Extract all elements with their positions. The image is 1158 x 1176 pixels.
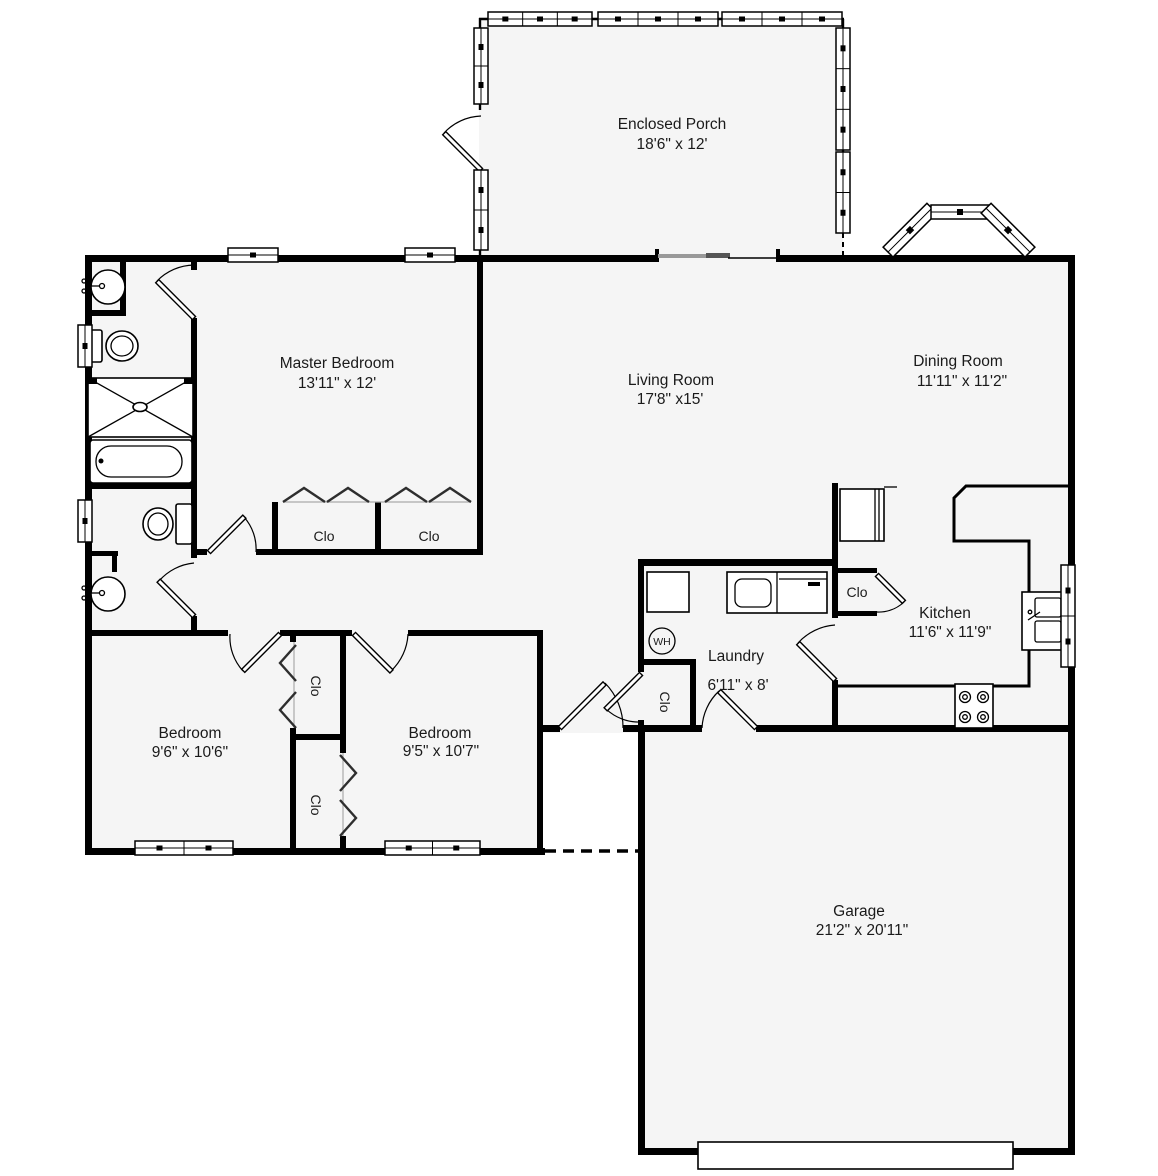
garage-name: Garage [833,903,885,920]
living-room-dims: 17'8" x15' [637,391,704,408]
garage-door [698,1142,1013,1169]
floor-plan-page: WH [0,0,1158,1176]
garage-dims: 21'2" x 20'11" [816,922,908,939]
garage-floor [640,733,1075,1153]
window [427,253,433,258]
bathtub [90,440,192,483]
porch-window [841,210,846,216]
porch-window [779,17,785,22]
master-bedroom-dims: 13'11" x 12' [298,375,376,392]
porch-window [739,17,745,22]
window [406,846,412,851]
window [83,343,88,349]
bedroom-left-dims: 9'6" x 10'6" [152,744,228,761]
window [83,518,88,524]
laundry-dims: 6'11" x 8' [707,677,768,694]
porch-window [502,17,508,22]
bedroom-left-closet-label: Clo [308,675,324,696]
porch-window [479,187,484,193]
refrigerator [840,489,884,541]
master-closet-left-label: Clo [313,528,334,544]
stove [955,684,993,728]
window [250,253,256,258]
dining-room-name: Dining Room [913,353,1003,370]
window [1066,639,1071,645]
dining-room-dims: 11'11" x 11'2" [917,373,1007,390]
porch-door [443,116,483,172]
washer-dryer [727,572,827,613]
porch-window [479,82,484,88]
window [1066,588,1071,594]
porch-window [819,17,825,22]
laundry-name: Laundry [708,648,764,665]
porch-window [572,17,578,22]
porch-window [537,17,543,22]
hall-closet-label: Clo [657,691,673,712]
bedroom-right-dims: 9'5" x 10'7" [403,743,479,760]
porch-window [841,86,846,92]
porch-window [479,227,484,233]
shower [88,378,193,437]
living-room-name: Living Room [628,372,714,389]
bedroom-left-name: Bedroom [159,725,222,742]
master-closet-right-label: Clo [418,528,439,544]
kitchen-dims: 11'6" x 11'9" [909,624,992,641]
porch-window [841,45,846,51]
toilet [88,330,138,362]
porch-window [841,169,846,175]
dryer-control [808,582,820,586]
room-fills [85,17,1075,1153]
porch-window [655,17,661,22]
porch-window [841,127,846,133]
main-floor [85,255,1075,733]
freezer [647,572,689,612]
porch-window [615,17,621,22]
window [157,846,163,851]
window [206,846,212,851]
bedroom-right-name: Bedroom [409,725,472,742]
pantry-closet-label: Clo [846,584,867,600]
window [453,846,459,851]
bedroom-right-closet-label: Clo [308,794,324,815]
porch-window [479,44,484,50]
porch-name: Enclosed Porch [618,116,727,133]
porch-dims: 18'6" x 12' [637,136,708,153]
porch-window [695,17,701,22]
water-heater-label: WH [653,636,671,648]
kitchen-name: Kitchen [919,605,971,622]
floor-plan: WH [0,0,1158,1176]
master-bedroom-name: Master Bedroom [280,355,395,372]
bay-window [883,203,1035,257]
